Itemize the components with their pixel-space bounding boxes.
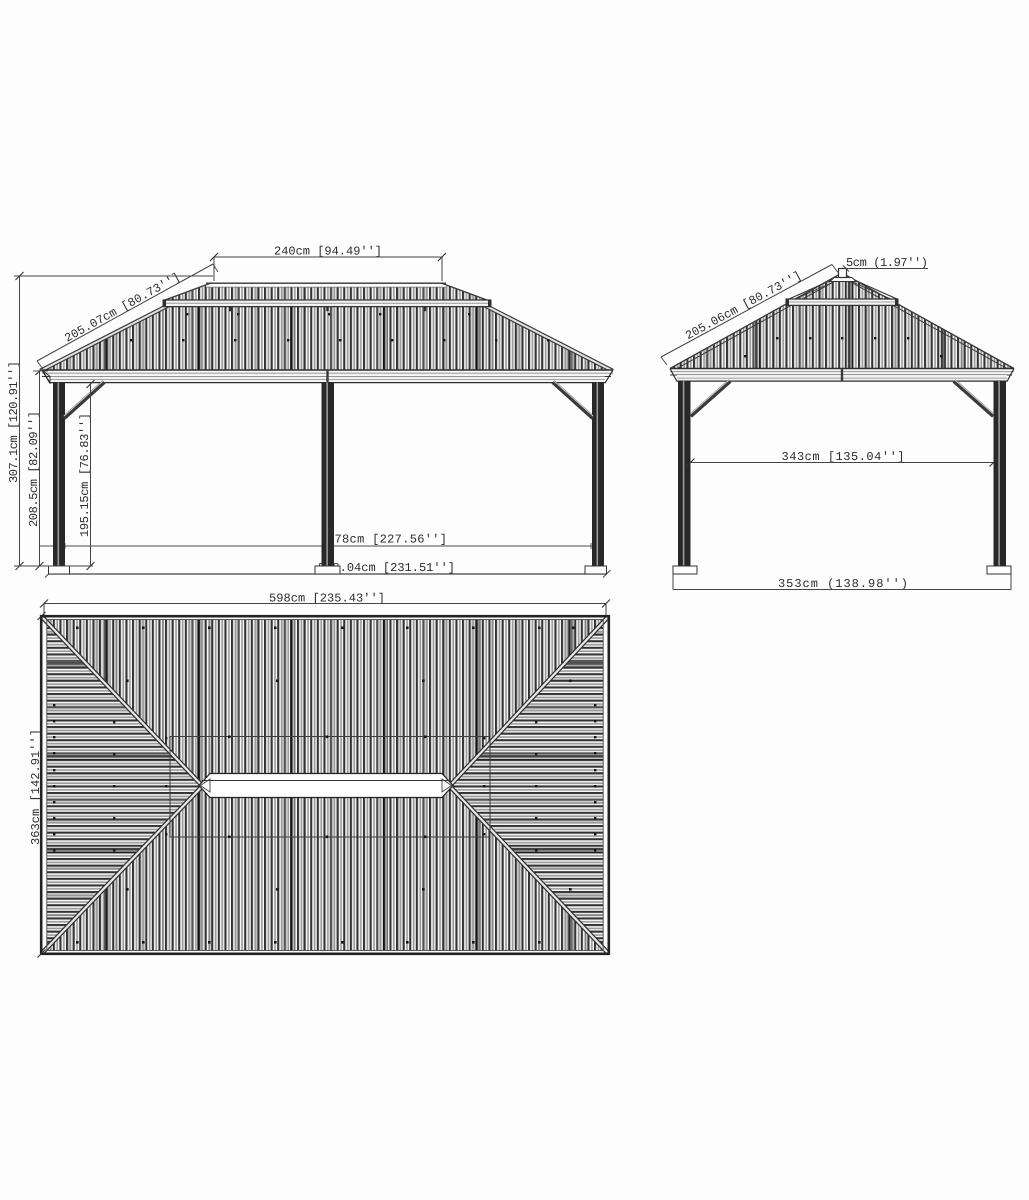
svg-text:208.5cm [82.09'']: 208.5cm [82.09''] xyxy=(27,411,41,527)
svg-text:307.1cm [120.91'']: 307.1cm [120.91''] xyxy=(7,361,21,483)
svg-text:578cm [227.56'']: 578cm [227.56''] xyxy=(327,533,447,547)
svg-text:240cm [94.49'']: 240cm [94.49''] xyxy=(274,245,382,259)
svg-text:5cm (1.97''): 5cm (1.97'') xyxy=(846,256,928,270)
svg-text:363cm [142.91'']: 363cm [142.91''] xyxy=(29,729,43,845)
svg-text:343cm [135.04'']: 343cm [135.04''] xyxy=(782,450,905,464)
svg-text:353cm (138.98''): 353cm (138.98'') xyxy=(778,577,908,591)
svg-text:195.15cm [76.83'']: 195.15cm [76.83''] xyxy=(78,413,92,537)
